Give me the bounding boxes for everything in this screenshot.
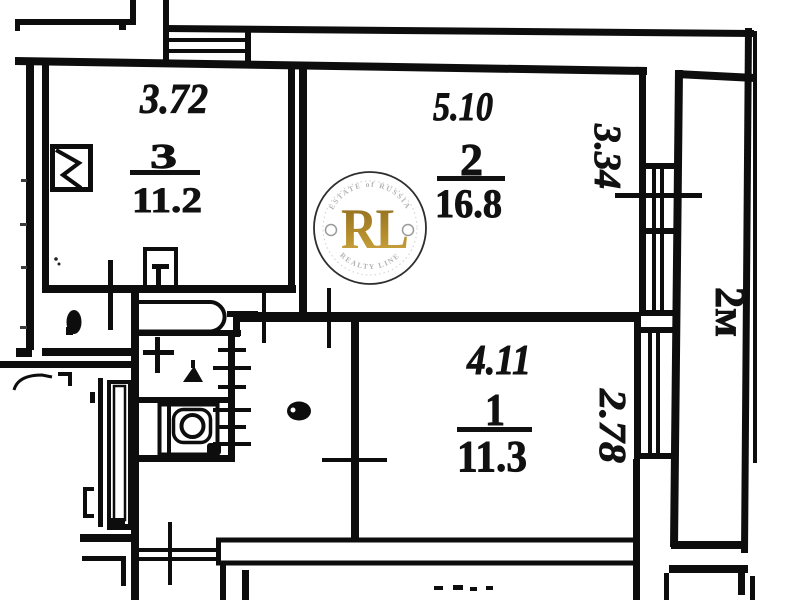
svg-text:11.2: 11.2 [132, 180, 202, 220]
svg-text:5.10: 5.10 [433, 84, 493, 129]
svg-text:2.78: 2.78 [591, 388, 633, 463]
svg-text:3.34: 3.34 [586, 123, 628, 189]
svg-text:16.8: 16.8 [435, 181, 502, 226]
svg-text:3.72: 3.72 [139, 77, 208, 123]
svg-text:11.3: 11.3 [457, 432, 527, 481]
svg-text:2м: 2м [706, 287, 752, 337]
svg-text:RL: RL [341, 197, 407, 261]
svg-text:4.11: 4.11 [466, 338, 531, 384]
